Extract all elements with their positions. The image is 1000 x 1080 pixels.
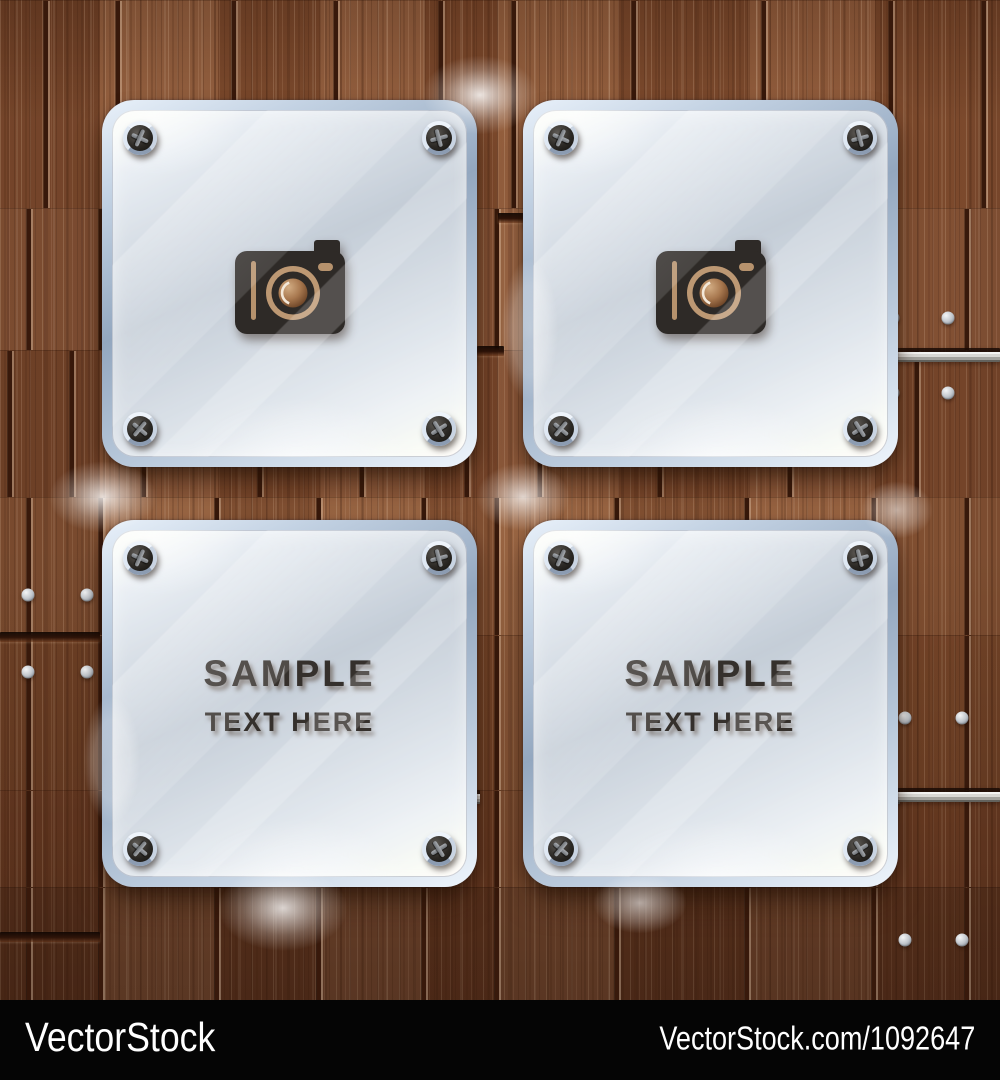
nail-head-icon bbox=[81, 666, 94, 679]
glass-surface bbox=[112, 110, 467, 457]
glass-panel-bottom-left: SAMPLE TEXT HERE bbox=[102, 520, 477, 887]
screw-icon bbox=[843, 121, 877, 155]
poster: SAMPLE TEXT HERE SAMPLE TEXT HERE Vector… bbox=[0, 0, 1000, 1080]
camera-icon bbox=[235, 240, 345, 334]
plank-seam bbox=[880, 788, 1000, 802]
vectorstock-url: VectorStock.com/1092647 bbox=[659, 1022, 975, 1055]
screw-icon bbox=[123, 412, 157, 446]
glass-surface: SAMPLE TEXT HERE bbox=[533, 530, 888, 877]
plank-seam bbox=[0, 632, 100, 642]
nail-head-icon bbox=[899, 934, 912, 947]
screw-icon bbox=[123, 541, 157, 575]
screw-icon bbox=[123, 121, 157, 155]
glass-panel-top-right bbox=[523, 100, 898, 467]
plank-seam bbox=[498, 213, 524, 223]
screw-icon bbox=[544, 412, 578, 446]
sample-title: SAMPLE bbox=[203, 655, 375, 692]
nail-head-icon bbox=[956, 712, 969, 725]
screw-icon bbox=[544, 121, 578, 155]
nail-head-icon bbox=[942, 312, 955, 325]
watermark-bar: VectorStock VectorStock.com/1092647 bbox=[0, 1000, 1000, 1080]
nail-head-icon bbox=[942, 387, 955, 400]
screw-icon bbox=[123, 832, 157, 866]
glass-surface: SAMPLE TEXT HERE bbox=[112, 530, 467, 877]
screw-icon bbox=[422, 832, 456, 866]
glass-surface bbox=[533, 110, 888, 457]
screw-icon bbox=[544, 832, 578, 866]
screw-icon bbox=[843, 412, 877, 446]
nail-head-icon bbox=[81, 589, 94, 602]
plank-seam bbox=[477, 346, 504, 356]
sample-subtitle: TEXT HERE bbox=[205, 709, 375, 736]
nail-head-icon bbox=[956, 934, 969, 947]
vectorstock-logo: VectorStock bbox=[25, 1017, 215, 1058]
glass-panel-top-left bbox=[102, 100, 477, 467]
camera-icon bbox=[656, 240, 766, 334]
screw-icon bbox=[422, 412, 456, 446]
nail-head-icon bbox=[899, 712, 912, 725]
screw-icon bbox=[544, 541, 578, 575]
screw-icon bbox=[843, 832, 877, 866]
screw-icon bbox=[843, 541, 877, 575]
glass-panel-bottom-right: SAMPLE TEXT HERE bbox=[523, 520, 898, 887]
wood-band bbox=[0, 887, 1000, 1000]
screw-icon bbox=[422, 541, 456, 575]
sample-title: SAMPLE bbox=[624, 655, 796, 692]
sample-subtitle: TEXT HERE bbox=[626, 709, 796, 736]
plank-seam bbox=[0, 932, 100, 942]
nail-head-icon bbox=[22, 589, 35, 602]
nail-head-icon bbox=[22, 666, 35, 679]
screw-icon bbox=[422, 121, 456, 155]
